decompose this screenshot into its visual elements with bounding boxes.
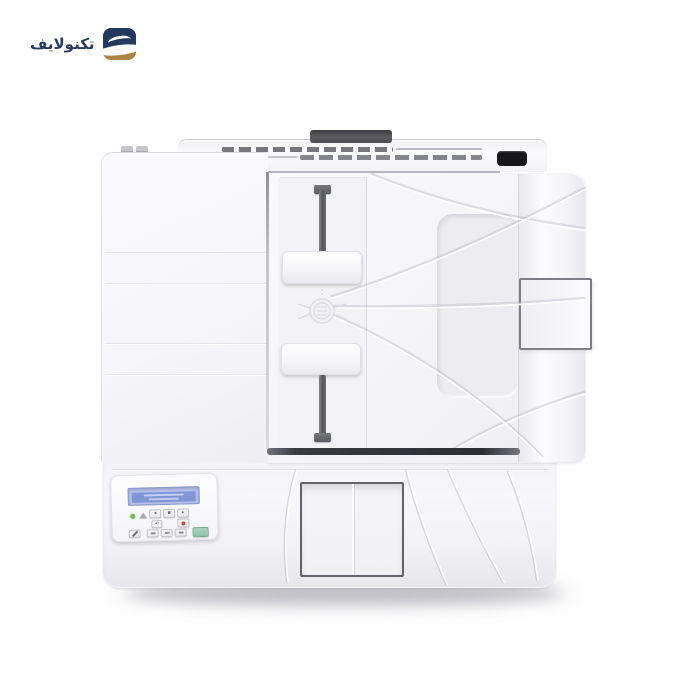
- back-icon: ↶: [155, 522, 159, 527]
- left-arrow-icon: ◂: [154, 511, 157, 516]
- ready-led-icon: [130, 514, 135, 519]
- left-arrow-button: ◂: [149, 509, 161, 518]
- lcd-text-line: [149, 498, 179, 501]
- guide-slider-rod-top: [319, 191, 326, 253]
- rear-handle-bar: [310, 130, 392, 143]
- attention-triangle-icon: [139, 512, 147, 518]
- rear-black-slot: [497, 151, 527, 166]
- watermark-logo: تكنولايف: [30, 28, 136, 60]
- lid-groove-line: [105, 252, 281, 253]
- lcd-display: [127, 486, 199, 506]
- id-copy-icon: [178, 532, 183, 534]
- right-arrow-button: ▸: [177, 508, 189, 517]
- rear-vent-row-lower: [300, 155, 482, 160]
- lcd-text-band: [132, 491, 196, 503]
- watermark-brand-text: تكنولايف: [30, 35, 95, 53]
- front-slot-gap: [267, 448, 520, 455]
- guide-slider-rod-bottom: [319, 375, 326, 435]
- guide-slider-cap-bottom: [314, 433, 331, 442]
- wrench-icon: [132, 531, 138, 537]
- ok-button: ▪: [163, 509, 175, 518]
- lcd-text-line: [144, 493, 184, 496]
- right-arrow-icon: ▸: [182, 510, 185, 515]
- id-copy-button: [175, 528, 187, 536]
- back-button: ↶: [151, 520, 162, 528]
- setup-button: [129, 530, 141, 538]
- scanner-lid-left-panel: [101, 152, 268, 463]
- lid-groove-line: [105, 374, 281, 375]
- hp-embossed-logo: [298, 286, 346, 332]
- lid-groove-line: [105, 283, 281, 284]
- ok-icon: ▪: [167, 511, 171, 516]
- output-tray-door: [300, 482, 404, 577]
- lid-groove-line: [105, 343, 281, 344]
- copies-icon: [150, 532, 155, 534]
- copies-button: [147, 529, 159, 537]
- control-panel: ◂ ▪ ▸ ↶: [110, 473, 219, 543]
- technolife-logo-icon: [103, 28, 136, 60]
- product-image: ◂ ▪ ▸ ↶ تكنولايف: [0, 0, 686, 686]
- lighter-darker-icon: [164, 532, 169, 534]
- rear-vent-line-right: [396, 148, 482, 150]
- cancel-icon: [181, 521, 185, 525]
- paper-guide-handle-upper: [282, 251, 362, 284]
- cancel-button: [177, 518, 189, 527]
- lighter-darker-button: [161, 529, 173, 537]
- paper-guide-handle-lower: [281, 343, 361, 375]
- start-copy-button: [193, 527, 209, 537]
- output-tray-midline: [352, 484, 354, 575]
